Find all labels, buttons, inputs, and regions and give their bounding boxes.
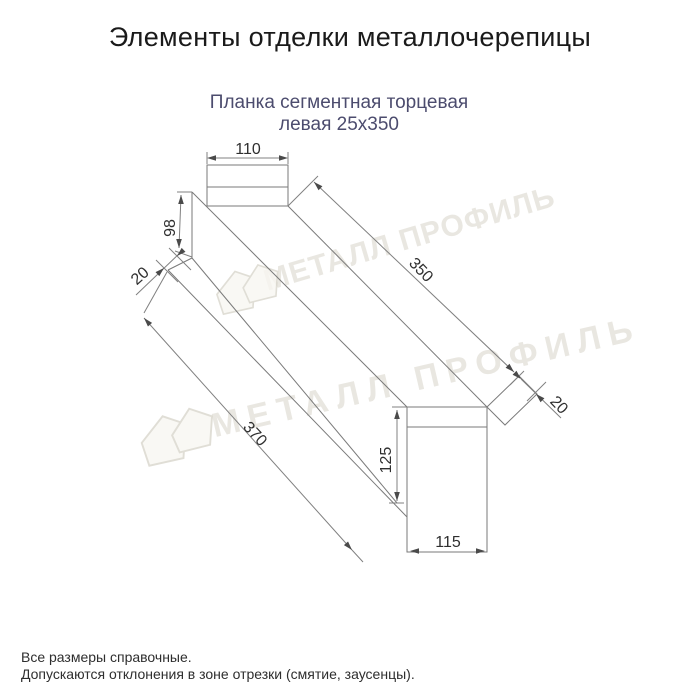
footer-note-2: Допускаются отклонения в зоне отрезки (с… xyxy=(21,666,415,683)
product-subtitle-line2: левая 25х350 xyxy=(0,114,678,136)
page-title: Элементы отделки металлочерепицы xyxy=(0,22,700,53)
dimension-lines xyxy=(136,152,561,562)
brand-logo-icon xyxy=(217,265,278,314)
product-subtitle-line1: Планка сегментная торцевая xyxy=(0,92,678,114)
footer-notes: Все размеры справочные. Допускаются откл… xyxy=(21,649,415,683)
dim-label-top-width: 110 xyxy=(235,141,261,158)
page: { "header": { "title": "Элементы отделки… xyxy=(0,0,700,700)
dim-label-length-bottom: 370 xyxy=(239,419,270,450)
footer-note-1: Все размеры справочные. xyxy=(21,649,415,666)
product-subtitle: Планка сегментная торцевая левая 25х350 xyxy=(0,92,678,136)
dimension-labels: 110 98 20 370 350 20 125 115 xyxy=(128,141,571,551)
dim-label-length-top: 350 xyxy=(405,255,436,286)
dim-label-right-hem: 20 xyxy=(546,393,571,418)
dim-label-end-height: 125 xyxy=(378,447,395,474)
dimension-arrowheads xyxy=(142,155,544,554)
right-end-section xyxy=(407,407,487,552)
dim-label-left-height: 98 xyxy=(162,219,179,237)
dim-label-end-width: 115 xyxy=(435,534,461,551)
dim-label-left-hem: 20 xyxy=(128,264,153,289)
brand-logo-icon xyxy=(142,409,212,466)
profile-object-lines xyxy=(168,165,537,552)
left-end-section xyxy=(207,165,288,206)
